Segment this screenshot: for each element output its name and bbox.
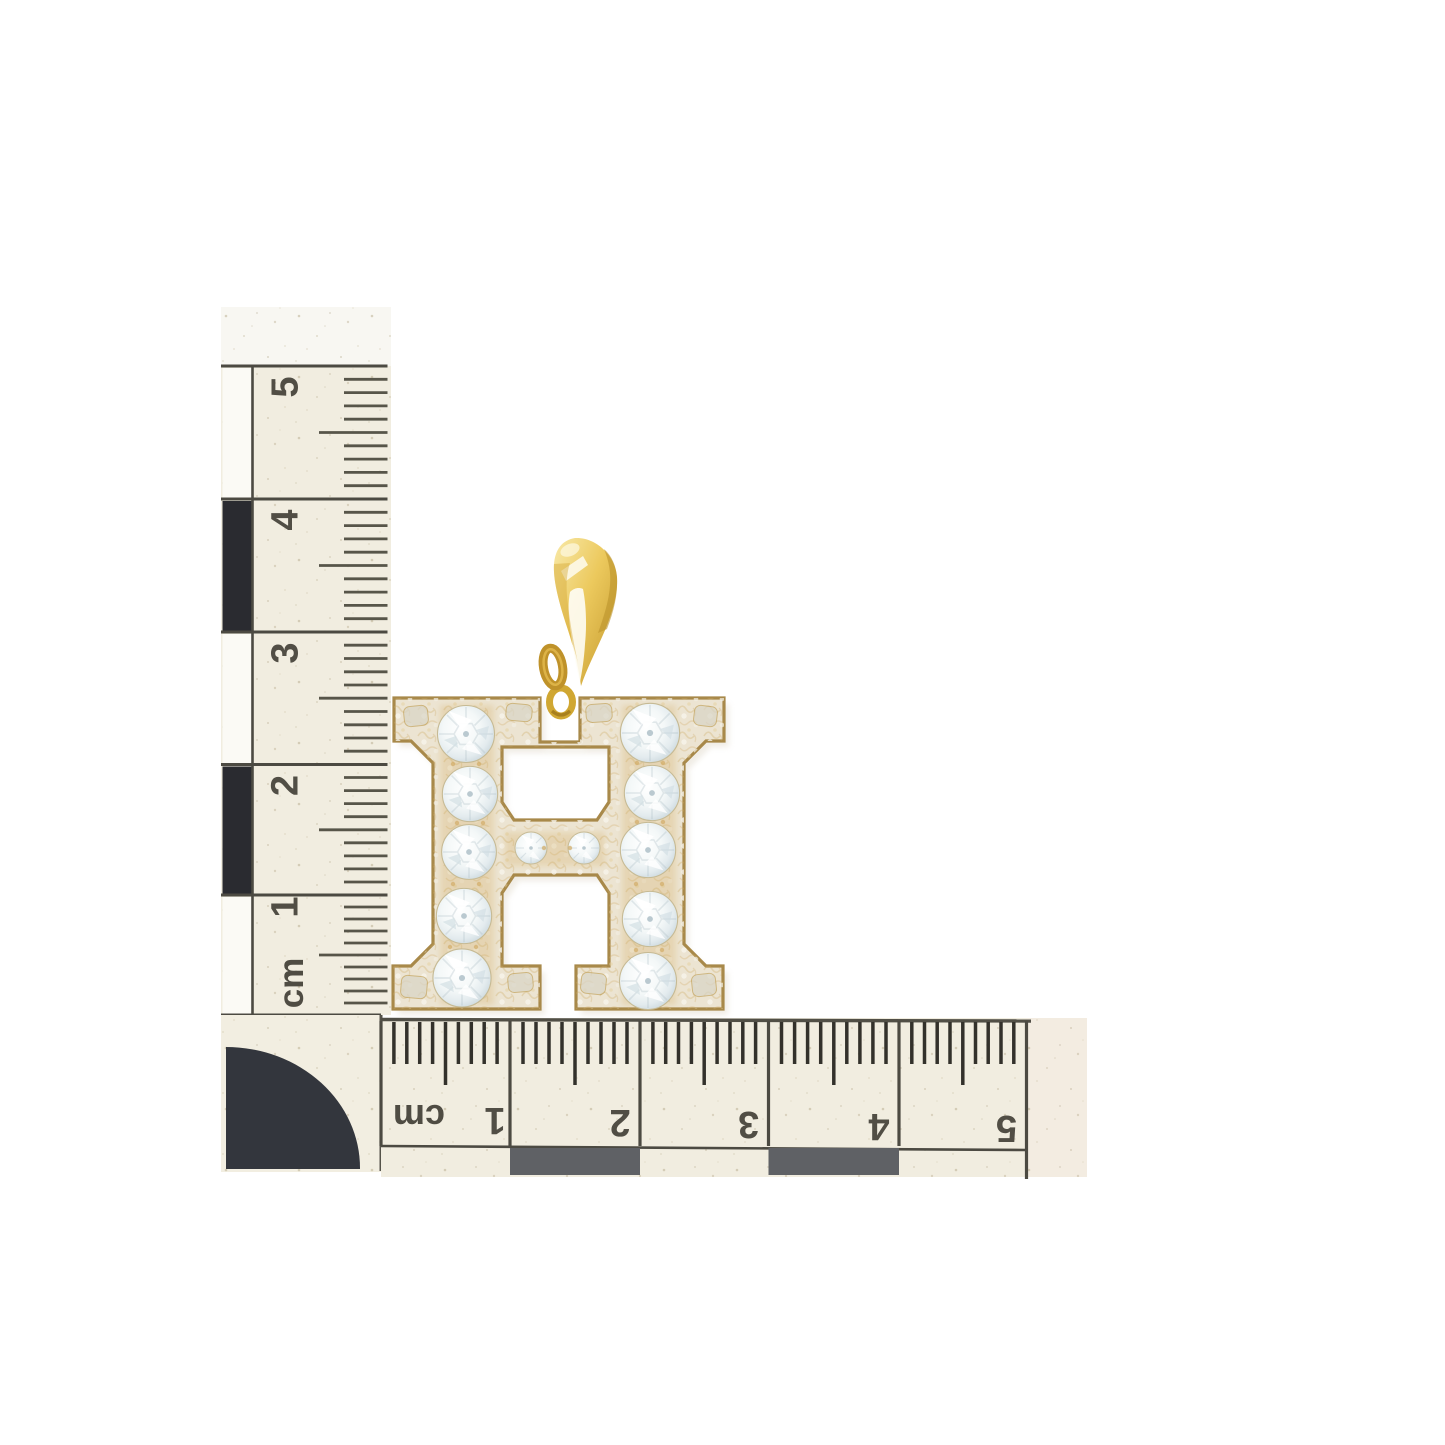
svg-text:5: 5 [265, 376, 307, 397]
svg-text:cm: cm [272, 958, 311, 1009]
svg-text:1: 1 [265, 896, 307, 917]
svg-text:2: 2 [609, 1101, 630, 1143]
svg-text:1: 1 [484, 1099, 505, 1141]
svg-text:4: 4 [265, 509, 307, 530]
svg-text:3: 3 [738, 1103, 759, 1145]
svg-text:cm: cm [393, 1097, 445, 1138]
svg-text:3: 3 [265, 642, 307, 663]
svg-text:2: 2 [265, 775, 307, 796]
svg-text:4: 4 [868, 1105, 889, 1147]
svg-text:5: 5 [996, 1107, 1017, 1149]
